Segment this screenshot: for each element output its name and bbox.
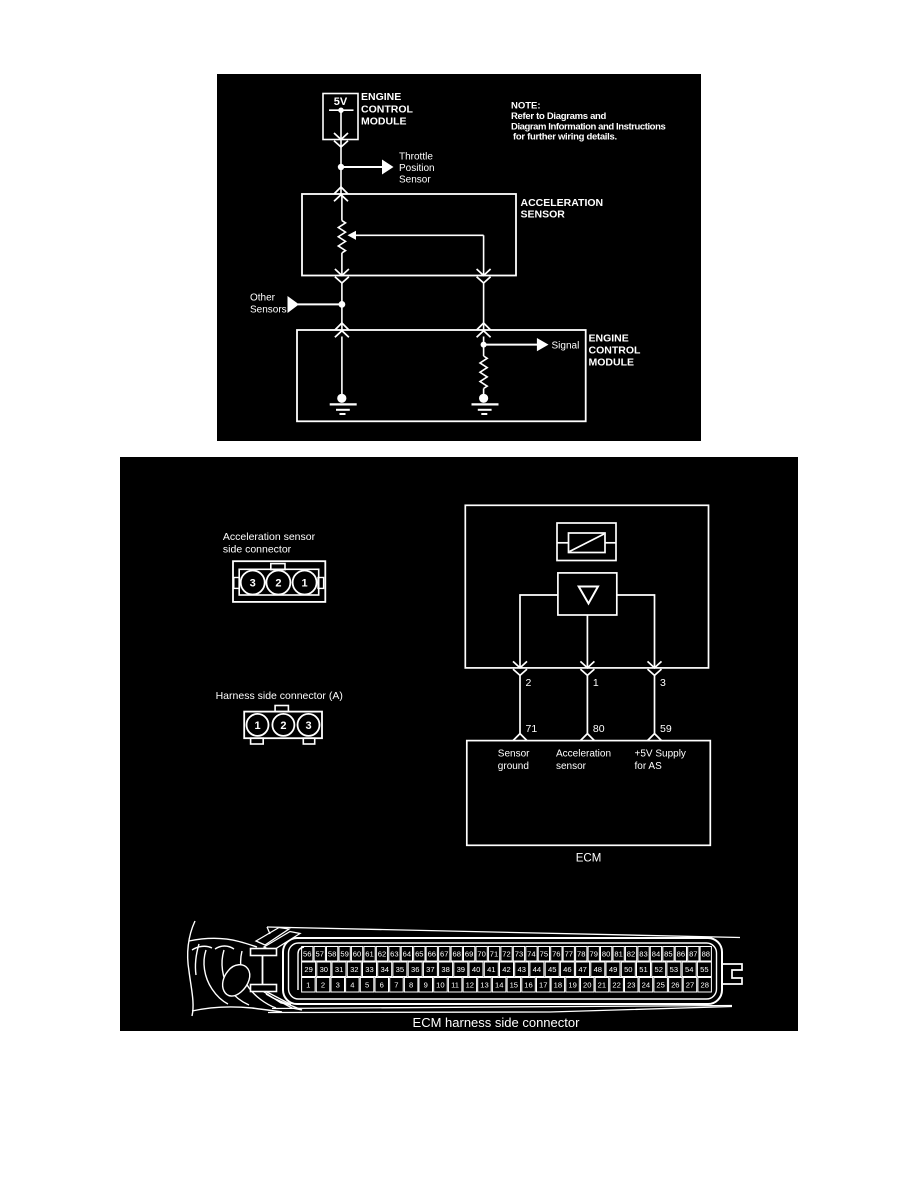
svg-text:56: 56 xyxy=(303,949,311,958)
svg-text:2: 2 xyxy=(275,578,281,590)
svg-text:ENGINE: ENGINE xyxy=(589,333,629,345)
svg-text:62: 62 xyxy=(378,949,386,958)
svg-text:49: 49 xyxy=(609,965,617,974)
svg-text:Sensors: Sensors xyxy=(250,305,287,316)
svg-text:60: 60 xyxy=(353,949,361,958)
svg-text:74: 74 xyxy=(527,949,535,958)
svg-text:50: 50 xyxy=(624,965,632,974)
svg-text:sensor: sensor xyxy=(556,761,587,772)
svg-text:Acceleration: Acceleration xyxy=(556,749,611,760)
svg-text:10: 10 xyxy=(436,980,444,989)
svg-text:64: 64 xyxy=(403,949,411,958)
svg-text:81: 81 xyxy=(614,949,622,958)
svg-text:71: 71 xyxy=(526,723,538,735)
svg-text:ECM: ECM xyxy=(576,853,602,865)
svg-text:1: 1 xyxy=(593,677,599,689)
svg-text:23: 23 xyxy=(627,980,635,989)
svg-text:77: 77 xyxy=(565,949,573,958)
svg-text:19: 19 xyxy=(568,980,576,989)
svg-text:ENGINE: ENGINE xyxy=(361,91,401,103)
svg-text:83: 83 xyxy=(639,949,647,958)
svg-text:MODULE: MODULE xyxy=(589,357,635,369)
svg-text:11: 11 xyxy=(451,980,459,989)
svg-text:84: 84 xyxy=(652,949,660,958)
svg-text:71: 71 xyxy=(490,949,498,958)
svg-text:ground: ground xyxy=(498,761,529,772)
svg-text:28: 28 xyxy=(700,980,708,989)
svg-text:88: 88 xyxy=(702,949,710,958)
svg-text:47: 47 xyxy=(578,965,586,974)
svg-text:Other: Other xyxy=(250,293,276,304)
svg-text:34: 34 xyxy=(380,965,388,974)
svg-text:NOTE:: NOTE: xyxy=(511,101,541,112)
svg-text:26: 26 xyxy=(671,980,679,989)
svg-text:29: 29 xyxy=(304,965,312,974)
svg-text:Sensor: Sensor xyxy=(498,749,530,760)
svg-text:40: 40 xyxy=(472,965,480,974)
svg-text:76: 76 xyxy=(552,949,560,958)
svg-text:65: 65 xyxy=(415,949,423,958)
svg-text:59: 59 xyxy=(660,723,672,735)
svg-text:20: 20 xyxy=(583,980,591,989)
svg-text:75: 75 xyxy=(540,949,548,958)
svg-text:72: 72 xyxy=(502,949,510,958)
svg-text:53: 53 xyxy=(670,965,678,974)
svg-text:2: 2 xyxy=(321,980,325,989)
svg-text:80: 80 xyxy=(602,949,610,958)
svg-text:+5V Supply: +5V Supply xyxy=(635,749,686,760)
svg-text:12: 12 xyxy=(466,980,474,989)
svg-text:51: 51 xyxy=(639,965,647,974)
svg-text:43: 43 xyxy=(517,965,525,974)
svg-text:for AS: for AS xyxy=(635,761,663,772)
svg-text:70: 70 xyxy=(477,949,485,958)
svg-text:5V: 5V xyxy=(334,96,348,108)
svg-text:Acceleration sensor: Acceleration sensor xyxy=(223,531,316,543)
svg-text:21: 21 xyxy=(598,980,606,989)
svg-text:17: 17 xyxy=(539,980,547,989)
svg-text:CONTROL: CONTROL xyxy=(361,104,413,116)
svg-text:9: 9 xyxy=(424,980,428,989)
svg-text:16: 16 xyxy=(524,980,532,989)
svg-text:3: 3 xyxy=(660,677,666,689)
svg-text:52: 52 xyxy=(654,965,662,974)
svg-text:13: 13 xyxy=(480,980,488,989)
svg-text:24: 24 xyxy=(642,980,650,989)
svg-text:37: 37 xyxy=(426,965,434,974)
svg-text:63: 63 xyxy=(390,949,398,958)
svg-text:5: 5 xyxy=(365,980,369,989)
svg-text:54: 54 xyxy=(685,965,693,974)
svg-text:33: 33 xyxy=(365,965,373,974)
svg-text:Position: Position xyxy=(399,163,435,174)
svg-text:SENSOR: SENSOR xyxy=(521,209,566,221)
svg-text:3: 3 xyxy=(250,578,256,590)
svg-text:ECM harness side connector: ECM harness side connector xyxy=(413,1015,581,1030)
svg-text:42: 42 xyxy=(502,965,510,974)
svg-text:2: 2 xyxy=(280,720,286,732)
svg-text:14: 14 xyxy=(495,980,503,989)
svg-text:44: 44 xyxy=(533,965,541,974)
svg-text:22: 22 xyxy=(612,980,620,989)
svg-text:8: 8 xyxy=(409,980,413,989)
svg-text:69: 69 xyxy=(465,949,473,958)
svg-text:32: 32 xyxy=(350,965,358,974)
svg-text:15: 15 xyxy=(510,980,518,989)
svg-text:ACCELERATION: ACCELERATION xyxy=(521,197,604,209)
svg-text:for further wiring details.: for further wiring details. xyxy=(513,132,617,143)
svg-text:7: 7 xyxy=(394,980,398,989)
svg-text:78: 78 xyxy=(577,949,585,958)
svg-text:45: 45 xyxy=(548,965,556,974)
svg-text:73: 73 xyxy=(515,949,523,958)
svg-text:39: 39 xyxy=(457,965,465,974)
svg-text:85: 85 xyxy=(664,949,672,958)
svg-text:66: 66 xyxy=(428,949,436,958)
svg-text:57: 57 xyxy=(315,949,323,958)
svg-text:31: 31 xyxy=(335,965,343,974)
svg-text:18: 18 xyxy=(554,980,562,989)
svg-text:6: 6 xyxy=(380,980,384,989)
svg-text:61: 61 xyxy=(365,949,373,958)
svg-text:68: 68 xyxy=(452,949,460,958)
svg-text:Signal: Signal xyxy=(552,341,580,352)
svg-text:Throttle: Throttle xyxy=(399,152,433,163)
svg-text:Sensor: Sensor xyxy=(399,175,431,186)
svg-text:80: 80 xyxy=(593,723,605,735)
svg-text:67: 67 xyxy=(440,949,448,958)
svg-text:41: 41 xyxy=(487,965,495,974)
svg-text:58: 58 xyxy=(328,949,336,958)
svg-text:1: 1 xyxy=(306,980,310,989)
svg-text:82: 82 xyxy=(627,949,635,958)
svg-text:2: 2 xyxy=(526,677,532,689)
svg-text:side connector: side connector xyxy=(223,544,292,556)
svg-text:27: 27 xyxy=(686,980,694,989)
svg-text:3: 3 xyxy=(305,720,311,732)
svg-text:59: 59 xyxy=(340,949,348,958)
svg-text:36: 36 xyxy=(411,965,419,974)
svg-text:CONTROL: CONTROL xyxy=(589,345,641,357)
svg-text:3: 3 xyxy=(336,980,340,989)
svg-text:87: 87 xyxy=(689,949,697,958)
svg-text:Harness side connector (A): Harness side connector (A) xyxy=(216,690,343,702)
svg-text:86: 86 xyxy=(677,949,685,958)
svg-text:35: 35 xyxy=(396,965,404,974)
svg-text:46: 46 xyxy=(563,965,571,974)
svg-text:38: 38 xyxy=(441,965,449,974)
svg-text:1: 1 xyxy=(302,578,308,590)
svg-text:48: 48 xyxy=(594,965,602,974)
svg-text:30: 30 xyxy=(320,965,328,974)
svg-text:25: 25 xyxy=(656,980,664,989)
svg-text:55: 55 xyxy=(700,965,708,974)
svg-text:4: 4 xyxy=(350,980,354,989)
svg-text:79: 79 xyxy=(589,949,597,958)
svg-text:MODULE: MODULE xyxy=(361,116,407,128)
svg-text:1: 1 xyxy=(254,720,260,732)
